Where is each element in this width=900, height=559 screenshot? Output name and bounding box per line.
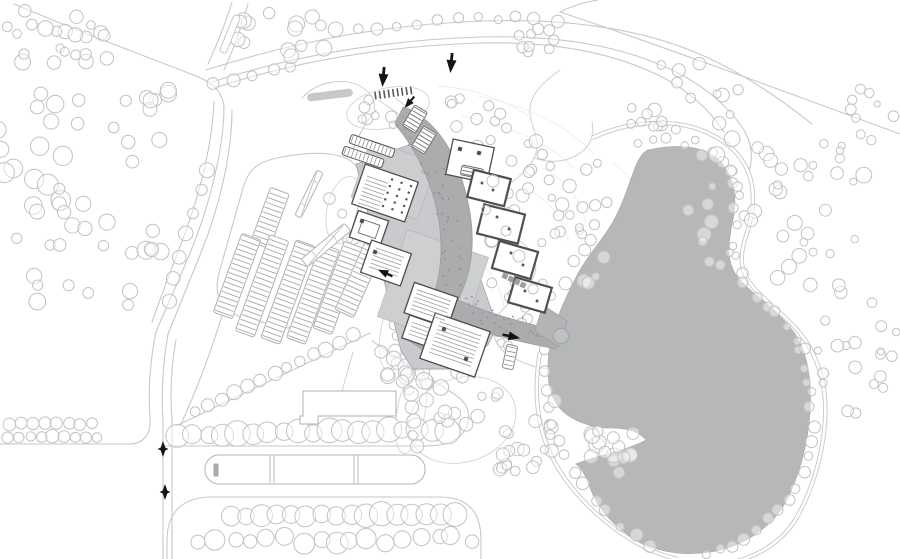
site-plan: [0, 0, 900, 559]
road-marker-diamonds: [158, 441, 171, 500]
entrance-arrow-icon: [377, 67, 389, 88]
linear-pavilion-building: [205, 455, 425, 484]
entrance-arrow-icon: [445, 53, 457, 74]
crosswalk: [372, 85, 413, 100]
road-marker-icon: [160, 484, 171, 500]
site-plan-drawing: [0, 0, 900, 559]
lake-pier-pavilion: [554, 329, 569, 344]
road-marker-icon: [158, 441, 169, 457]
linear-pavilion-tick: [214, 464, 219, 477]
